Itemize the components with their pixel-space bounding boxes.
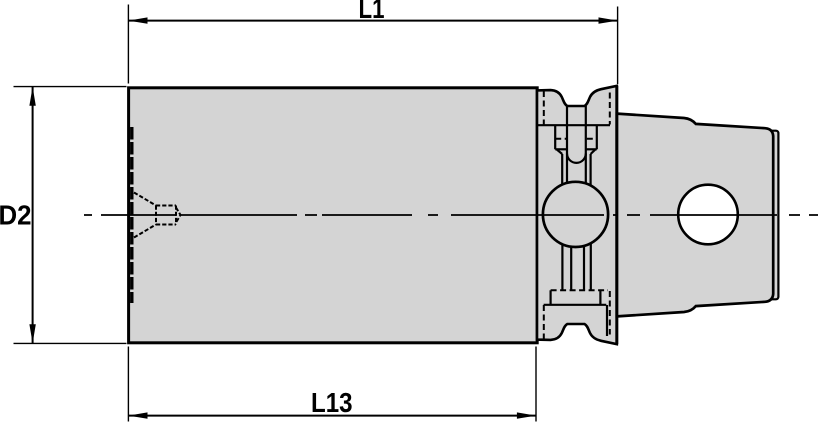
svg-text:L1: L1 [359, 0, 385, 24]
svg-text:L13: L13 [311, 387, 353, 418]
svg-text:D2: D2 [0, 200, 32, 231]
